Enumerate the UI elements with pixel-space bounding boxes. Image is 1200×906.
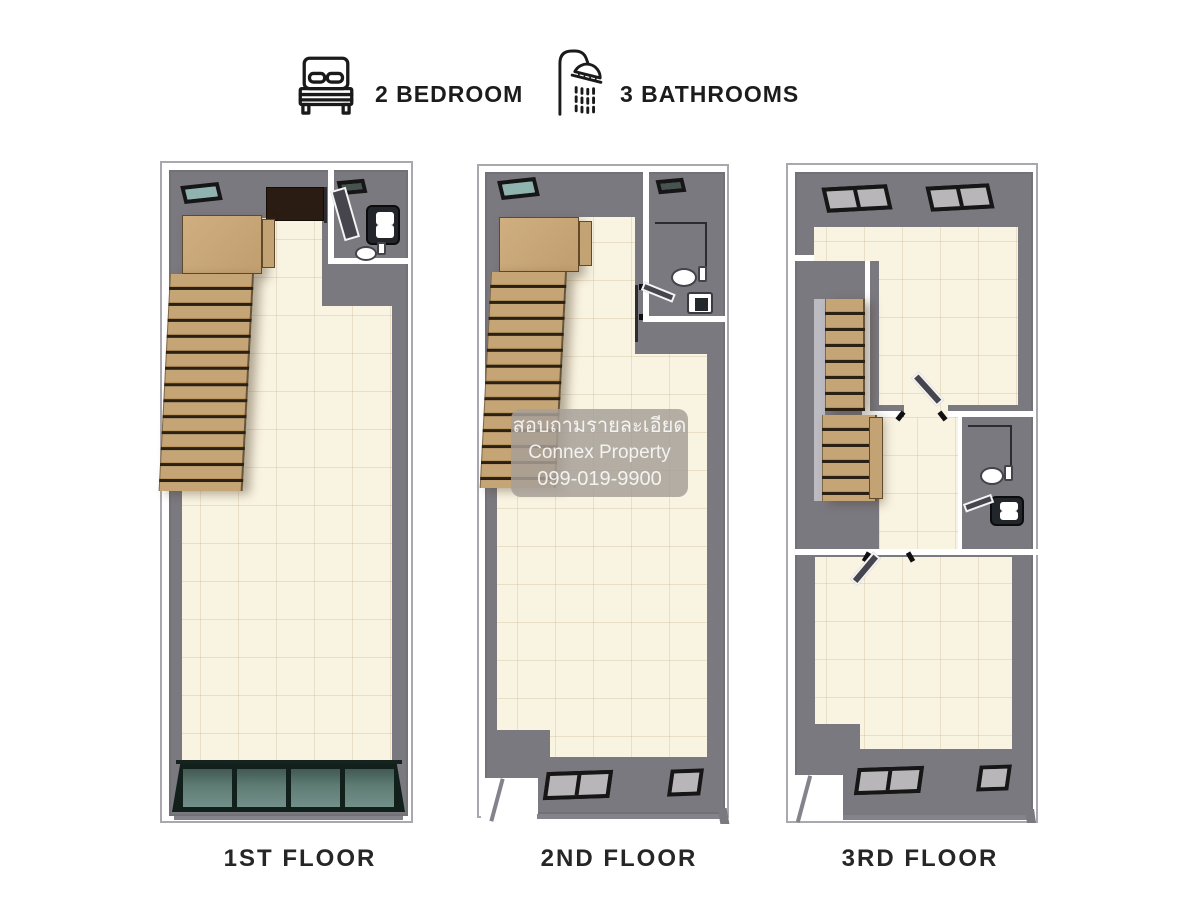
floor1-bathroom-sink <box>366 205 400 245</box>
floor3-facade-notch <box>790 775 843 821</box>
shower-icon <box>546 40 604 120</box>
floor2-window-top-left <box>497 177 540 200</box>
glass-pane <box>345 769 394 807</box>
floor1-glass-sliding-door <box>172 764 405 812</box>
floor-plan-3 <box>786 163 1038 823</box>
floor3-window-top-2 <box>925 183 994 211</box>
floor-plan-sheet: 2 BEDROOM 3 BATHROOMS <box>0 0 1200 906</box>
floor3-window-bottom-single <box>976 764 1012 791</box>
floor3-shower-partition-h <box>968 425 1012 427</box>
floor2-window-bottom-single <box>667 768 704 796</box>
glass-pane <box>183 769 232 807</box>
glass-pane <box>291 769 340 807</box>
floor3-hallway <box>879 417 958 549</box>
floor1-glass-door-track <box>176 760 402 764</box>
floor2-shower-partition-h <box>655 222 707 224</box>
floor3-toilet <box>980 467 1004 485</box>
floor2-label: 2ND FLOOR <box>541 845 698 873</box>
floor2-bathroom-door-jamb <box>639 314 643 320</box>
floor2-base-edge <box>537 814 723 819</box>
floor1-entrance-door <box>266 187 324 221</box>
floor3-base-foot <box>1025 809 1036 823</box>
bathrooms-label: 3 BATHROOMS <box>620 81 799 108</box>
floor2-bathroom-window <box>656 178 687 194</box>
floor3-wall-gap-e <box>788 549 1040 555</box>
watermark-line-3: 099-019-9900 <box>537 466 662 493</box>
floor3-toilet-tank <box>1004 465 1013 481</box>
floor2-stair-landing-step <box>579 221 592 266</box>
floor2-toilet-tank <box>698 266 707 282</box>
floor3-facade-post <box>796 775 812 822</box>
watermark-line-1: สอบถามรายละเอียด <box>513 413 687 440</box>
floor1-stair-landing <box>182 215 262 274</box>
floor1-bathroom-wall-gap-v <box>328 170 334 260</box>
floor2-stair-landing <box>499 217 579 272</box>
floor2-base-foot <box>718 808 730 824</box>
floor1-staircase <box>159 274 254 491</box>
floor2-bathroom-wall-gap-v <box>643 172 649 322</box>
watermark: สอบถามรายละเอียด Connex Property 099-019… <box>511 409 688 497</box>
floor3-bathroom-sink <box>990 496 1024 526</box>
bedrooms-label: 2 BEDROOM <box>375 81 523 108</box>
floor3-stair-landing <box>869 417 883 499</box>
floor1-toilet-tank <box>377 242 386 255</box>
floor-plan-1 <box>160 161 413 823</box>
floor3-label: 3RD FLOOR <box>842 845 999 873</box>
floor2-bathroom-sink <box>687 292 713 314</box>
floor2-facade-post <box>489 778 504 822</box>
floor1-base-edge <box>174 816 403 820</box>
floor3-staircase-upper <box>825 299 865 411</box>
floor2-toilet <box>671 268 697 287</box>
floor3-base-edge <box>843 815 1034 820</box>
watermark-line-2: Connex Property <box>528 440 671 466</box>
floor3-window-bottom-double <box>854 766 924 795</box>
floor2-wall-edge <box>635 285 638 342</box>
floor2-window-bottom-double <box>543 770 613 800</box>
floor3-wall-gap-b <box>865 255 870 417</box>
floor1-door-jamb <box>324 187 327 223</box>
floor3-window-top-1 <box>821 184 892 212</box>
floor1-toilet <box>355 246 377 261</box>
floor2-facade-notch <box>481 778 538 820</box>
floor1-stair-landing-step <box>262 219 275 268</box>
floor2-bathroom-wall-gap-h <box>643 316 725 322</box>
bed-icon <box>293 52 359 120</box>
floor1-label: 1ST FLOOR <box>224 845 377 873</box>
glass-pane <box>237 769 286 807</box>
